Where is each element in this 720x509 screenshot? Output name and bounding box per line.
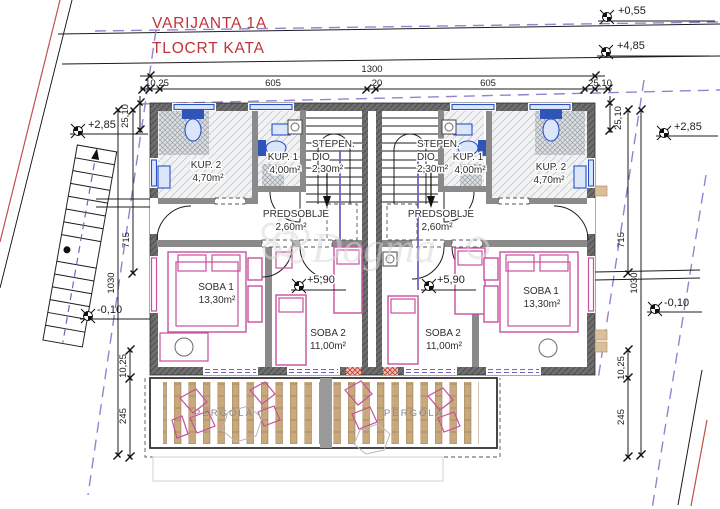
- window-top-3: [450, 103, 496, 111]
- soba1-left-name: SOBA 1: [198, 282, 234, 293]
- stepen-left-2: DIO: [312, 152, 330, 163]
- soba2-right-name: SOBA 2: [425, 328, 461, 339]
- dim-seg5: 25,10: [588, 78, 612, 89]
- window-bottom-4: [486, 367, 541, 375]
- floor-plan-canvas: PERGOLA PERGOLA Dogma KUP. 2 4,70m² KUP.…: [0, 0, 720, 509]
- kup1-left-name: KUP. 1: [268, 152, 299, 163]
- dim-seg4: 605: [480, 78, 496, 89]
- floor-plan-drawing: PERGOLA PERGOLA Dogma KUP. 2 4,70m² KUP.…: [0, 0, 720, 509]
- single-bed: [276, 295, 306, 365]
- pergola: PERGOLA PERGOLA: [145, 378, 500, 481]
- svg-text:+4,85: +4,85: [617, 40, 645, 52]
- level-plus485: +4,85: [597, 40, 710, 59]
- stepen-right-2: DIO: [417, 152, 435, 163]
- cistern-icon: [182, 110, 204, 119]
- level-minus010-right: -0,10: [647, 297, 702, 316]
- dim-left-1030: 1030: [106, 272, 117, 293]
- window-left-bath: [150, 158, 158, 188]
- door-kup2-right: [499, 198, 529, 204]
- soba1-right-area: 13,30m²: [524, 299, 561, 310]
- dim-right-1025: 10,25: [616, 356, 627, 380]
- window-top-4: [528, 103, 572, 111]
- dim-left-1025: 10,25: [118, 354, 129, 378]
- level-minus010-left: -0,10: [80, 304, 150, 323]
- drawing-title: VARIJANTA 1A TLOCRT KATA: [152, 15, 267, 57]
- level-plus285-left: +2,85: [70, 119, 148, 138]
- stepen-right-1: STEPEN.: [417, 139, 460, 150]
- stepen-left-1: STEPEN.: [312, 139, 355, 150]
- kup2-right-area: 4,70m²: [533, 175, 565, 186]
- window-bottom-3: [404, 367, 457, 375]
- washing-machine-icon: [288, 120, 302, 134]
- sink-icon: [574, 166, 586, 188]
- sink-icon: [158, 166, 170, 188]
- soba1-left-area: 13,30m²: [199, 295, 236, 306]
- dim-total: 1300: [361, 64, 382, 75]
- cistern-icon: [258, 140, 266, 156]
- pergola-label-right: PERGOLA: [384, 408, 444, 419]
- table: [539, 339, 557, 357]
- entry-door-right: [554, 198, 595, 240]
- dim-right-245: 245: [616, 409, 627, 425]
- kup2-left-area: 4,70m²: [192, 173, 224, 184]
- svg-text:+0,55: +0,55: [618, 5, 646, 17]
- soba2-right-area: 11,00m²: [426, 341, 463, 352]
- external-staircase: [43, 145, 117, 347]
- window-top-1: [172, 103, 216, 111]
- dim-left-715: 715: [121, 232, 132, 248]
- level-plus285-right: +2,85: [656, 121, 718, 140]
- svg-text:+5,90: +5,90: [307, 274, 335, 286]
- threshold-right: [383, 367, 398, 375]
- washbasin-icon: [454, 124, 472, 135]
- road-edge-line: [0, 0, 60, 242]
- window-left-soba1: [150, 256, 158, 313]
- pergola-label-left: PERGOLA: [194, 408, 254, 419]
- door-kup2-left: [215, 198, 245, 204]
- svg-text:+2,85: +2,85: [674, 121, 702, 133]
- pergola-pillar: [320, 378, 332, 448]
- kup1-right-area: 4,00m²: [454, 165, 486, 176]
- predsoblje-left-area: 2,60m²: [275, 222, 307, 233]
- washbasin-icon: [272, 124, 290, 135]
- kup1-left-area: 4,00m²: [269, 165, 301, 176]
- watermark-text: Dogma: [311, 226, 436, 272]
- kup2-left-name: KUP. 2: [191, 160, 222, 171]
- svg-text:-0,10: -0,10: [97, 304, 122, 316]
- kup1-right-name: KUP. 1: [453, 152, 484, 163]
- entry-door-left: [150, 198, 191, 240]
- setback-line-left: [88, 30, 156, 495]
- window-right-soba1: [587, 256, 595, 313]
- title-line1: VARIJANTA 1A: [152, 15, 267, 32]
- dim-right-715: 715: [616, 232, 627, 248]
- svg-text:+2,85: +2,85: [88, 119, 116, 131]
- svg-text:+5,90: +5,90: [437, 274, 465, 286]
- table: [160, 333, 208, 361]
- dim-corner-left: 25,10: [120, 104, 131, 128]
- predsoblje-left-name: PREDSOBLJE: [263, 209, 329, 220]
- svg-text:-0,10: -0,10: [664, 297, 689, 309]
- lower-floor-outline: [153, 457, 443, 481]
- window-right-bath: [587, 158, 595, 188]
- soba2-left-area: 11,00m²: [310, 341, 347, 352]
- cistern-icon: [540, 110, 562, 119]
- kup2-right-name: KUP. 2: [536, 162, 567, 173]
- threshold-left: [346, 367, 361, 375]
- toilet-icon: [185, 119, 201, 141]
- washing-machine-icon: [442, 120, 456, 134]
- level-plus055: +0,55: [598, 5, 715, 24]
- toilet-icon: [543, 119, 559, 141]
- window-top-2: [248, 103, 294, 111]
- predsoblje-right-name: PREDSOBLJE: [408, 209, 474, 220]
- predsoblje-right-area: 2,60m²: [421, 222, 453, 233]
- right-landing-lines: [595, 270, 700, 280]
- bathroom-floors: [157, 110, 587, 198]
- dim-corner-right: 25,10: [613, 106, 624, 130]
- dim-right-1030: 1030: [629, 272, 640, 293]
- dim-seg1: 10,25: [145, 78, 169, 89]
- dim-left-245: 245: [118, 408, 129, 424]
- stepen-right-area: 2,30m²: [417, 164, 449, 175]
- soba2-left-name: SOBA 2: [310, 328, 346, 339]
- window-bottom-1: [203, 367, 258, 375]
- dim-seg2: 605: [265, 78, 281, 89]
- single-bed: [388, 296, 418, 364]
- soba1-right-name: SOBA 1: [523, 286, 559, 297]
- stepen-left-area: 2,30m²: [312, 164, 344, 175]
- title-line2: TLOCRT KATA: [152, 40, 265, 57]
- dim-seg3: 20: [372, 78, 383, 89]
- window-bottom-2: [287, 367, 340, 375]
